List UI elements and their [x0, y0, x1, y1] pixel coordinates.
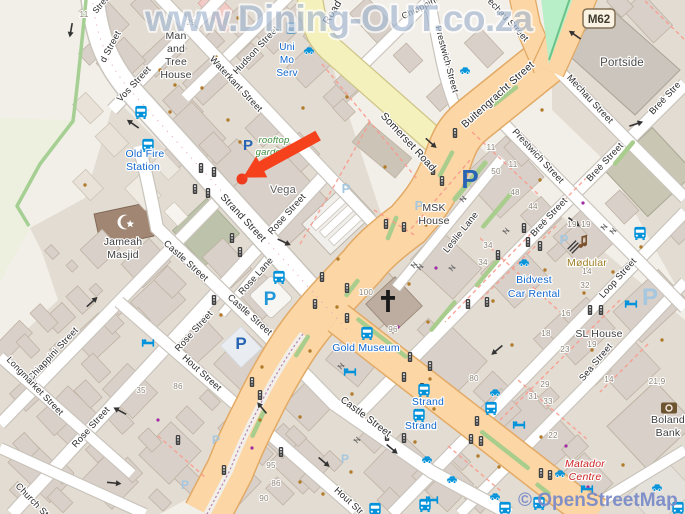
svg-text:19: 19	[587, 340, 597, 349]
svg-text:48: 48	[510, 188, 520, 197]
svg-text:P: P	[342, 181, 351, 196]
svg-text:Jameah: Jameah	[104, 236, 143, 248]
svg-text:14: 14	[582, 267, 592, 276]
svg-text:P: P	[243, 137, 253, 154]
svg-text:Mo: Mo	[280, 55, 295, 66]
svg-text:Strand: Strand	[412, 396, 444, 408]
svg-text:P: P	[212, 433, 220, 447]
svg-text:23: 23	[560, 345, 570, 354]
svg-text:18: 18	[541, 329, 551, 338]
svg-text:P: P	[235, 334, 246, 353]
svg-text:Bidvest: Bidvest	[516, 274, 552, 286]
svg-text:100: 100	[359, 288, 374, 297]
svg-text:44: 44	[528, 202, 538, 211]
svg-text:90: 90	[259, 494, 269, 503]
svg-text:Vega: Vega	[270, 184, 297, 196]
svg-text:34: 34	[483, 241, 493, 250]
svg-text:95: 95	[266, 461, 276, 470]
svg-text:29: 29	[540, 380, 550, 389]
svg-text:11: 11	[80, 10, 89, 19]
svg-text:Tree: Tree	[165, 56, 187, 68]
svg-text:Portside: Portside	[600, 57, 644, 69]
svg-text:P: P	[560, 232, 569, 247]
svg-text:21,9: 21,9	[649, 377, 666, 386]
svg-text:P: P	[341, 452, 349, 466]
svg-text:14: 14	[604, 375, 614, 384]
svg-text:32: 32	[580, 281, 590, 290]
svg-text:19: 19	[581, 220, 591, 229]
svg-text:50: 50	[491, 167, 501, 176]
svg-text:Old Fire: Old Fire	[126, 148, 165, 160]
svg-text:22: 22	[548, 431, 558, 440]
svg-text:Gold Museum: Gold Museum	[332, 342, 400, 354]
svg-text:P: P	[181, 478, 189, 492]
svg-text:Bank: Bank	[656, 427, 681, 439]
svg-text:and: and	[167, 43, 185, 55]
svg-text:Centre: Centre	[569, 471, 602, 483]
svg-text:www.Dining-OUT.co.za: www.Dining-OUT.co.za	[144, 0, 533, 39]
svg-text:Boland: Boland	[651, 414, 685, 426]
svg-text:M62: M62	[588, 14, 610, 26]
svg-text:© OpenStreetMap: © OpenStreetMap	[518, 490, 678, 511]
svg-text:33: 33	[543, 397, 553, 406]
svg-text:80: 80	[469, 374, 479, 383]
svg-text:Car Rental: Car Rental	[508, 288, 560, 300]
svg-text:96: 96	[388, 325, 398, 334]
svg-text:Masjid: Masjid	[107, 249, 139, 261]
svg-text:86: 86	[173, 382, 183, 391]
svg-text:SL House: SL House	[575, 328, 622, 340]
svg-text:86: 86	[271, 479, 281, 488]
svg-text:34: 34	[478, 258, 488, 267]
svg-text:P: P	[642, 284, 658, 311]
svg-text:House: House	[160, 69, 191, 81]
svg-text:16: 16	[561, 309, 571, 318]
svg-text:Station: Station	[126, 161, 160, 173]
svg-text:11: 11	[487, 143, 496, 152]
svg-text:P: P	[264, 289, 277, 310]
svg-text:Strand: Strand	[405, 420, 437, 432]
svg-text:31: 31	[528, 392, 538, 401]
svg-text:19: 19	[567, 220, 577, 229]
svg-text:11: 11	[509, 160, 518, 169]
svg-text:P: P	[461, 164, 478, 194]
svg-text:MSK: MSK	[422, 202, 445, 214]
svg-text:Serv: Serv	[276, 68, 297, 79]
svg-text:Uni: Uni	[279, 42, 295, 53]
svg-text:Matador: Matador	[565, 458, 605, 470]
svg-text:35: 35	[136, 386, 146, 395]
svg-text:House: House	[418, 215, 449, 227]
svg-text:rooftop: rooftop	[259, 135, 290, 146]
